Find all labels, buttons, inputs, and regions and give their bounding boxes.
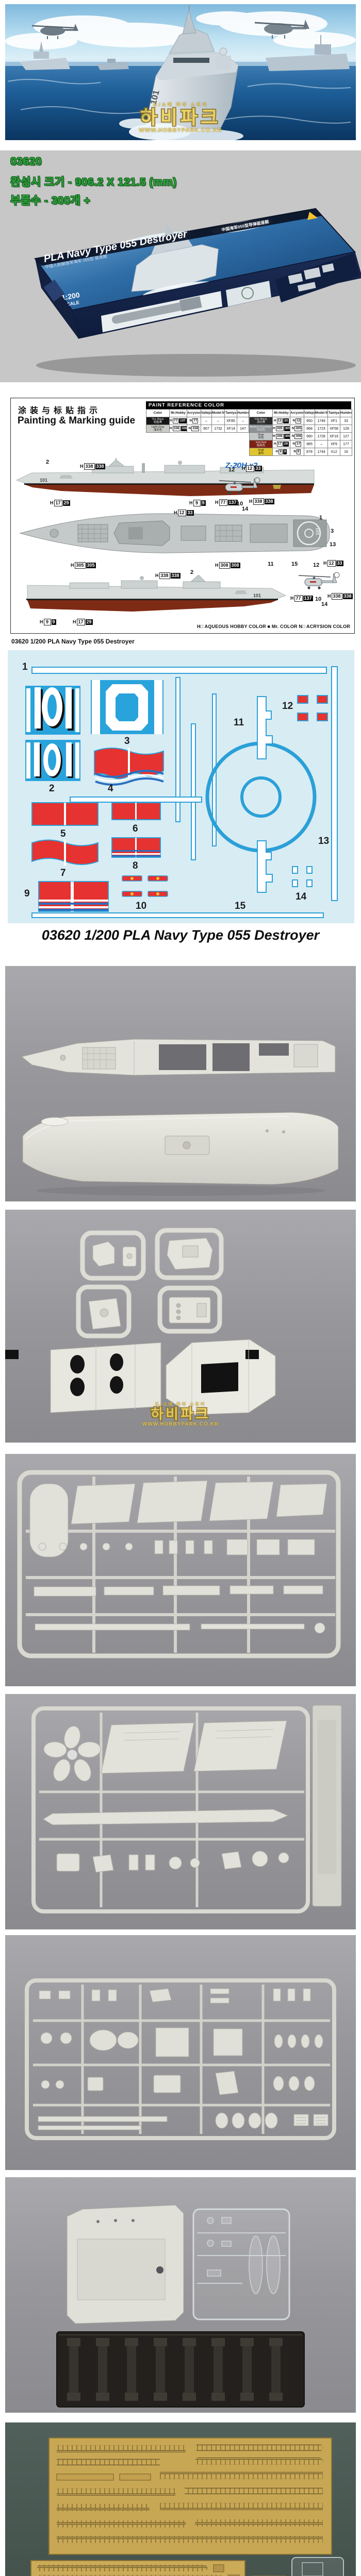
decal-label-8: 8 bbox=[133, 860, 138, 872]
hull-side-panel-1 bbox=[101, 1723, 194, 1773]
paint-table-right: Color Mr.Hobby Acrysion Vallejo Model Ma… bbox=[249, 409, 352, 456]
decal-flag-8 bbox=[112, 838, 160, 857]
decal-flag-9 bbox=[39, 882, 108, 911]
decal-label-14: 14 bbox=[296, 891, 306, 903]
guide-caption: 03620 1/200 PLA Navy Type 055 Destroyer bbox=[11, 638, 135, 645]
paint-callout-338: H338338 bbox=[80, 463, 105, 470]
callout-10-heli2: 10 bbox=[315, 596, 321, 602]
propeller-part bbox=[43, 1724, 101, 1784]
decal-101-large bbox=[91, 680, 163, 734]
hull-part bbox=[23, 1112, 338, 1196]
photo-sprue-hull-parts bbox=[5, 1694, 356, 1929]
photo-deck-clear-stand bbox=[5, 2177, 356, 2413]
paint-row-hull-red: Hull Red船底色 H1729 N17 985 – XF9 177 bbox=[250, 440, 352, 448]
decal-label-9: 9 bbox=[24, 888, 30, 900]
paint-callout-338-p2: H338338 bbox=[155, 572, 180, 579]
decal-label-7: 7 bbox=[60, 868, 66, 879]
hull-side-panel-2 bbox=[194, 1721, 287, 1771]
decal-label-11: 11 bbox=[234, 717, 244, 728]
decal-sheet: 1 2 3 4 5 6 7 8 9 10 11 12 13 14 15 bbox=[8, 650, 354, 923]
product-code: 03620 bbox=[10, 156, 42, 168]
product-info-band: 03620 완성시 크기 - 906.2 X 121.5 (mm) 부품수 - … bbox=[0, 150, 361, 382]
helicopter-profile-1 bbox=[218, 473, 261, 497]
ship-profile-starboard: 101 bbox=[17, 569, 287, 618]
paint-row-flat-black: Flat Black消光黑 H1233 N12 950 1749 XF1 33 bbox=[250, 417, 352, 425]
ship-profile-port: 101 bbox=[15, 458, 324, 500]
decal-101-small bbox=[25, 686, 80, 781]
decal-flag-7 bbox=[32, 840, 98, 866]
photo-hull-parts bbox=[5, 966, 356, 1201]
col-color: Color bbox=[146, 410, 170, 417]
paint-callout-hullred: H1729 bbox=[50, 500, 70, 506]
paint-callout-338b: H338338 bbox=[249, 498, 274, 505]
box-art-photo: 101 도/소 bbox=[5, 4, 356, 140]
col-humbrol: Humbrol bbox=[237, 410, 249, 417]
paint-callout-flatblack: H1233 bbox=[242, 465, 262, 472]
pe-fret-left bbox=[31, 2561, 245, 2576]
paint-row-light-gray: Light Gray浅灰色 H338338 N338 907 1732 XF14… bbox=[146, 425, 249, 433]
paint-legend: H□ AQUEOUS HOBBY COLOR ■ Mr. COLOR N□ AC… bbox=[197, 624, 350, 629]
photo-superstructure-parts: 도/소매 하비 스토어 하비파크 WWW.HOBBYPARK.CO.KR bbox=[5, 1210, 356, 1443]
decal-label-1: 1 bbox=[22, 662, 28, 673]
paint-callout-308: H308308 bbox=[215, 562, 240, 569]
display-stand bbox=[57, 2332, 304, 2407]
callout-1-plan: 1 bbox=[319, 515, 322, 521]
decal-label-15: 15 bbox=[235, 901, 245, 912]
paint-callout-gold: H99 bbox=[189, 500, 206, 506]
photo-sprue-flat-parts bbox=[5, 1454, 356, 1686]
decal-notched-11 bbox=[257, 697, 272, 892]
photo-sprue-small-parts bbox=[5, 1935, 356, 2170]
deck-part bbox=[22, 1039, 335, 1075]
paint-row-tire-black: Tire Black轮胎黑 H77137 N77 – – XF85 – bbox=[146, 417, 249, 425]
col-tamiya: Tamiya bbox=[225, 410, 237, 417]
decal-flag-6 bbox=[112, 803, 160, 820]
col-modelmaster: Model Master bbox=[212, 410, 225, 417]
decal-squares-12 bbox=[298, 696, 327, 721]
paint-table-title: PAINT REFERENCE COLOR bbox=[146, 401, 351, 409]
photo-etched-parts: 도/소매 하비 스토어 하비파크 WWW.HOBBYPARK.CO.KR bbox=[5, 2422, 356, 2576]
paint-reference-table: PAINT REFERENCE COLOR Color Mr.Hobby Acr… bbox=[146, 401, 351, 456]
decal-label-13: 13 bbox=[318, 836, 329, 847]
helipad-number: 101 bbox=[315, 528, 320, 535]
helipad-deck bbox=[293, 520, 326, 547]
hull-number-profile2: 101 bbox=[253, 593, 261, 598]
decal-label-2: 2 bbox=[49, 783, 55, 794]
box-art-illustration: 101 bbox=[5, 4, 356, 140]
callout-14-heli2: 14 bbox=[321, 601, 327, 607]
paint-callout-plan-12: H1233 bbox=[174, 510, 194, 516]
paint-row-gunship-gray: Medium Gunship Gray中灰色 H305305 N305 868 … bbox=[250, 425, 352, 433]
guide-title-cn: 涂装与标贴指示 bbox=[18, 403, 101, 416]
col-mrhobby: Mr.Hobby bbox=[170, 410, 187, 417]
helicopter-profile-2 bbox=[298, 568, 341, 592]
decal-strip-1 bbox=[32, 667, 326, 673]
callout-13-plan: 13 bbox=[330, 541, 336, 548]
decal-label-5: 5 bbox=[60, 828, 66, 840]
product-size-line: 완성시 크기 - 906.2 X 121.5 (mm) bbox=[10, 174, 177, 189]
decal-strip-bottom bbox=[32, 913, 323, 918]
box-shadow bbox=[36, 354, 356, 377]
clear-sprue bbox=[193, 2209, 289, 2319]
embossed-plate bbox=[313, 1705, 341, 1906]
col-vallejo: Vallejo bbox=[201, 410, 212, 417]
decal-sheet-art bbox=[8, 650, 354, 923]
callout-11-plan: 11 bbox=[268, 561, 274, 567]
hull-number-profile1: 101 bbox=[40, 478, 47, 483]
flight-deck-part bbox=[67, 2205, 184, 2324]
callout-15-plan: 15 bbox=[291, 561, 298, 567]
callout-3-plan: 3 bbox=[331, 528, 334, 534]
paint-callout-305: H305305 bbox=[71, 562, 96, 569]
pe-clear-piece bbox=[292, 2557, 343, 2576]
callout-12-heli2: 12 bbox=[313, 562, 319, 568]
callout-2-profile2: 2 bbox=[190, 569, 193, 575]
painting-guide: 涂装与标贴指示 Painting & Marking guide PAINT R… bbox=[10, 398, 355, 634]
paint-callout-tireblack: H77137 bbox=[215, 499, 238, 506]
kit-title: 03620 1/200 PLA Navy Type 055 Destroyer bbox=[0, 927, 361, 943]
sprue-frame-small-parts bbox=[27, 1980, 334, 2138]
decal-strip-right bbox=[332, 667, 337, 901]
pe-fret-large bbox=[49, 2438, 332, 2554]
decal-label-3: 3 bbox=[124, 736, 130, 747]
callout-2-profile1: 2 bbox=[46, 459, 49, 465]
col-acrysion: Acrysion bbox=[187, 410, 201, 417]
deckhouse-parts bbox=[5, 1340, 275, 1415]
paint-callout-77-heli2: H77137 bbox=[290, 595, 313, 602]
decal-label-6: 6 bbox=[133, 823, 138, 835]
paint-row-gray: Gray灰色 H308308 N308 990 1728 XF19 127 bbox=[250, 433, 352, 440]
decal-flag-4 bbox=[94, 748, 163, 785]
decal-flag-5 bbox=[32, 803, 98, 825]
paint-callout-338-heli2: H338338 bbox=[327, 593, 353, 600]
paint-row-gold: Gold金色 H99 N9 878 1744 X12 16 bbox=[250, 448, 352, 456]
product-page: 101 도/소 bbox=[0, 0, 361, 2576]
decal-label-4: 4 bbox=[108, 783, 113, 794]
waterline-strip bbox=[43, 1809, 288, 1825]
decal-squares-14 bbox=[292, 867, 312, 887]
box-photo: PLA Navy Type 055 Destroyer 中国人民解放军海军 05… bbox=[0, 199, 361, 382]
callout-12-heli1: 12 bbox=[228, 467, 235, 473]
paint-callout-hullred-p2: H1729 bbox=[73, 619, 93, 625]
paint-table-left: Color Mr.Hobby Acrysion Vallejo Model Ma… bbox=[146, 409, 249, 433]
decal-label-12: 12 bbox=[282, 701, 293, 712]
paint-callout-gold-p2: H99 bbox=[40, 619, 56, 625]
decal-star-strips-10 bbox=[122, 876, 168, 896]
decal-label-10: 10 bbox=[136, 901, 146, 912]
lower-hull-red bbox=[25, 485, 314, 496]
paint-callout-12-heli2: H1233 bbox=[323, 560, 343, 567]
decal-helipad-13 bbox=[207, 743, 315, 851]
guide-title-en: Painting & Marking guide bbox=[18, 415, 135, 427]
